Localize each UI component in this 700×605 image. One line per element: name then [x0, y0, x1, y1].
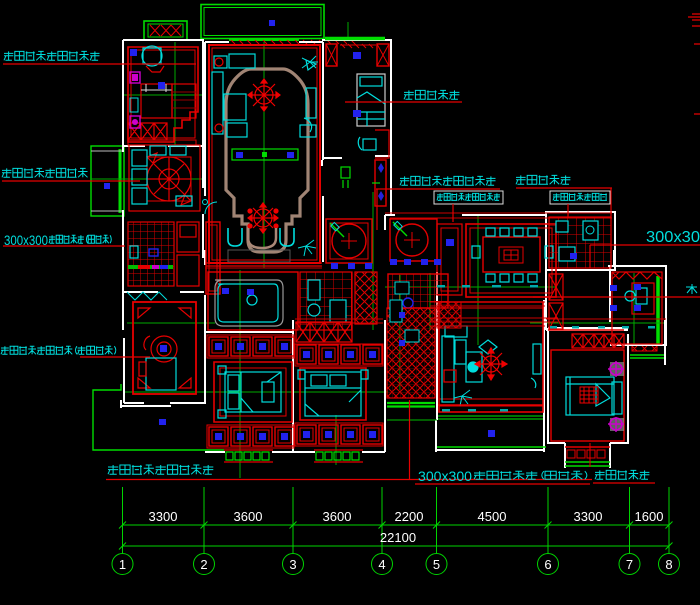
svg-text:7: 7: [626, 557, 633, 572]
svg-text:4: 4: [378, 557, 385, 572]
svg-text:3600: 3600: [323, 509, 352, 524]
svg-text:5: 5: [433, 557, 440, 572]
svg-text:3300: 3300: [574, 509, 603, 524]
svg-text:4500: 4500: [478, 509, 507, 524]
svg-text:300x30: 300x30: [646, 229, 700, 246]
svg-text:300x300: 300x300: [4, 232, 48, 248]
svg-text:3300: 3300: [149, 509, 178, 524]
svg-text:1600: 1600: [635, 509, 664, 524]
svg-text:22100: 22100: [380, 530, 416, 545]
svg-text:8: 8: [665, 557, 672, 572]
svg-text:1: 1: [119, 557, 126, 572]
svg-text:2: 2: [200, 557, 207, 572]
svg-text:2200: 2200: [395, 509, 424, 524]
svg-text:6: 6: [544, 557, 551, 572]
svg-text:300x300: 300x300: [418, 468, 472, 484]
svg-text:3600: 3600: [234, 509, 263, 524]
svg-text:3: 3: [289, 557, 296, 572]
